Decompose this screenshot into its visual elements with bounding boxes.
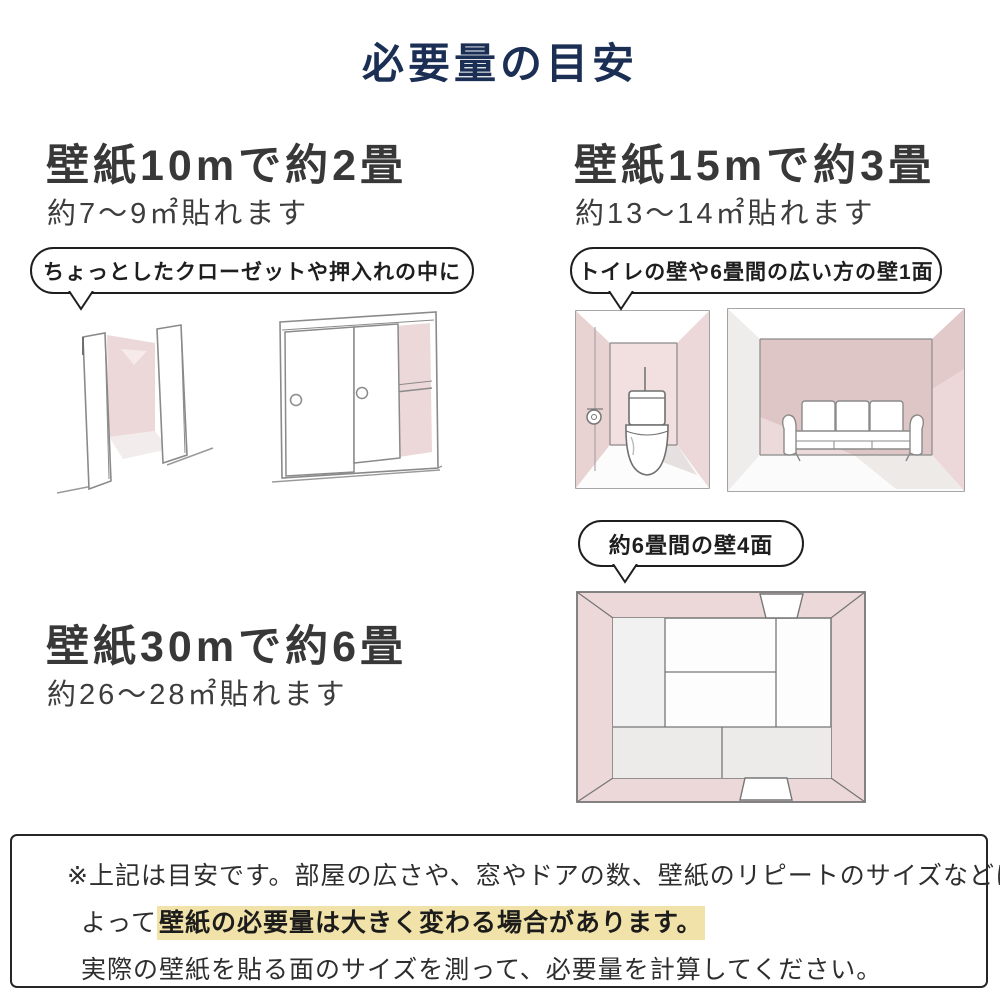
speech-bubble-tail-icon (612, 564, 638, 584)
page-title: 必要量の目安 (0, 30, 1000, 91)
open-closet-illustration (55, 303, 215, 508)
section3-heading: 壁紙30mで約6畳 (46, 612, 407, 674)
note-line-2-prefix: よって (81, 909, 157, 937)
section2-heading: 壁紙15mで約3畳 (574, 131, 935, 193)
section1-speech-bubble: ちょっとしたクローゼットや押入れの中に (30, 247, 474, 294)
note-line-2: よって壁紙の必要量は大きく変わる場合があります。 (67, 900, 966, 947)
section2-subheading: 約13〜14㎡貼れます (575, 190, 876, 232)
section2-speech-bubble: トイレの壁や6畳間の広い方の壁1面 (570, 247, 942, 294)
note-highlighted-warning: 壁紙の必要量は大きく変わる場合があります。 (157, 906, 705, 940)
speech-bubble-tail-icon (68, 291, 94, 311)
note-line-1: ※上記は目安です。部屋の広さや、窓やドアの数、壁紙のリピートのサイズなどに (67, 853, 966, 900)
section3-subheading: 約26〜28㎡貼れます (47, 671, 348, 713)
section3-bubble-label: 約6畳間の壁4面 (609, 528, 773, 560)
tatami-room-top-view-illustration (573, 586, 869, 808)
sliding-door-closet-illustration (272, 300, 444, 500)
section2-bubble-label: トイレの壁や6畳間の広い方の壁1面 (578, 256, 933, 286)
section3-speech-bubble: 約6畳間の壁4面 (578, 520, 804, 567)
note-line-3: 実際の壁紙を貼る面のサイズを測って、必要量を計算してください。 (67, 947, 966, 994)
section1-heading: 壁紙10mで約2畳 (46, 131, 407, 193)
wallpaper-quantity-infographic: 必要量の目安 壁紙10mで約2畳 約7〜9㎡貼れます ちょっとしたクローゼットや… (0, 0, 1000, 1000)
section1-bubble-label: ちょっとしたクローゼットや押入れの中に (43, 256, 461, 286)
toilet-room-illustration (573, 305, 713, 495)
speech-bubble-tail-icon (608, 291, 634, 311)
note-box: ※上記は目安です。部屋の広さや、窓やドアの数、壁紙のリピートのサイズなどに よっ… (10, 834, 988, 988)
section1-subheading: 約7〜9㎡貼れます (47, 190, 309, 232)
sofa-room-illustration (726, 305, 966, 495)
